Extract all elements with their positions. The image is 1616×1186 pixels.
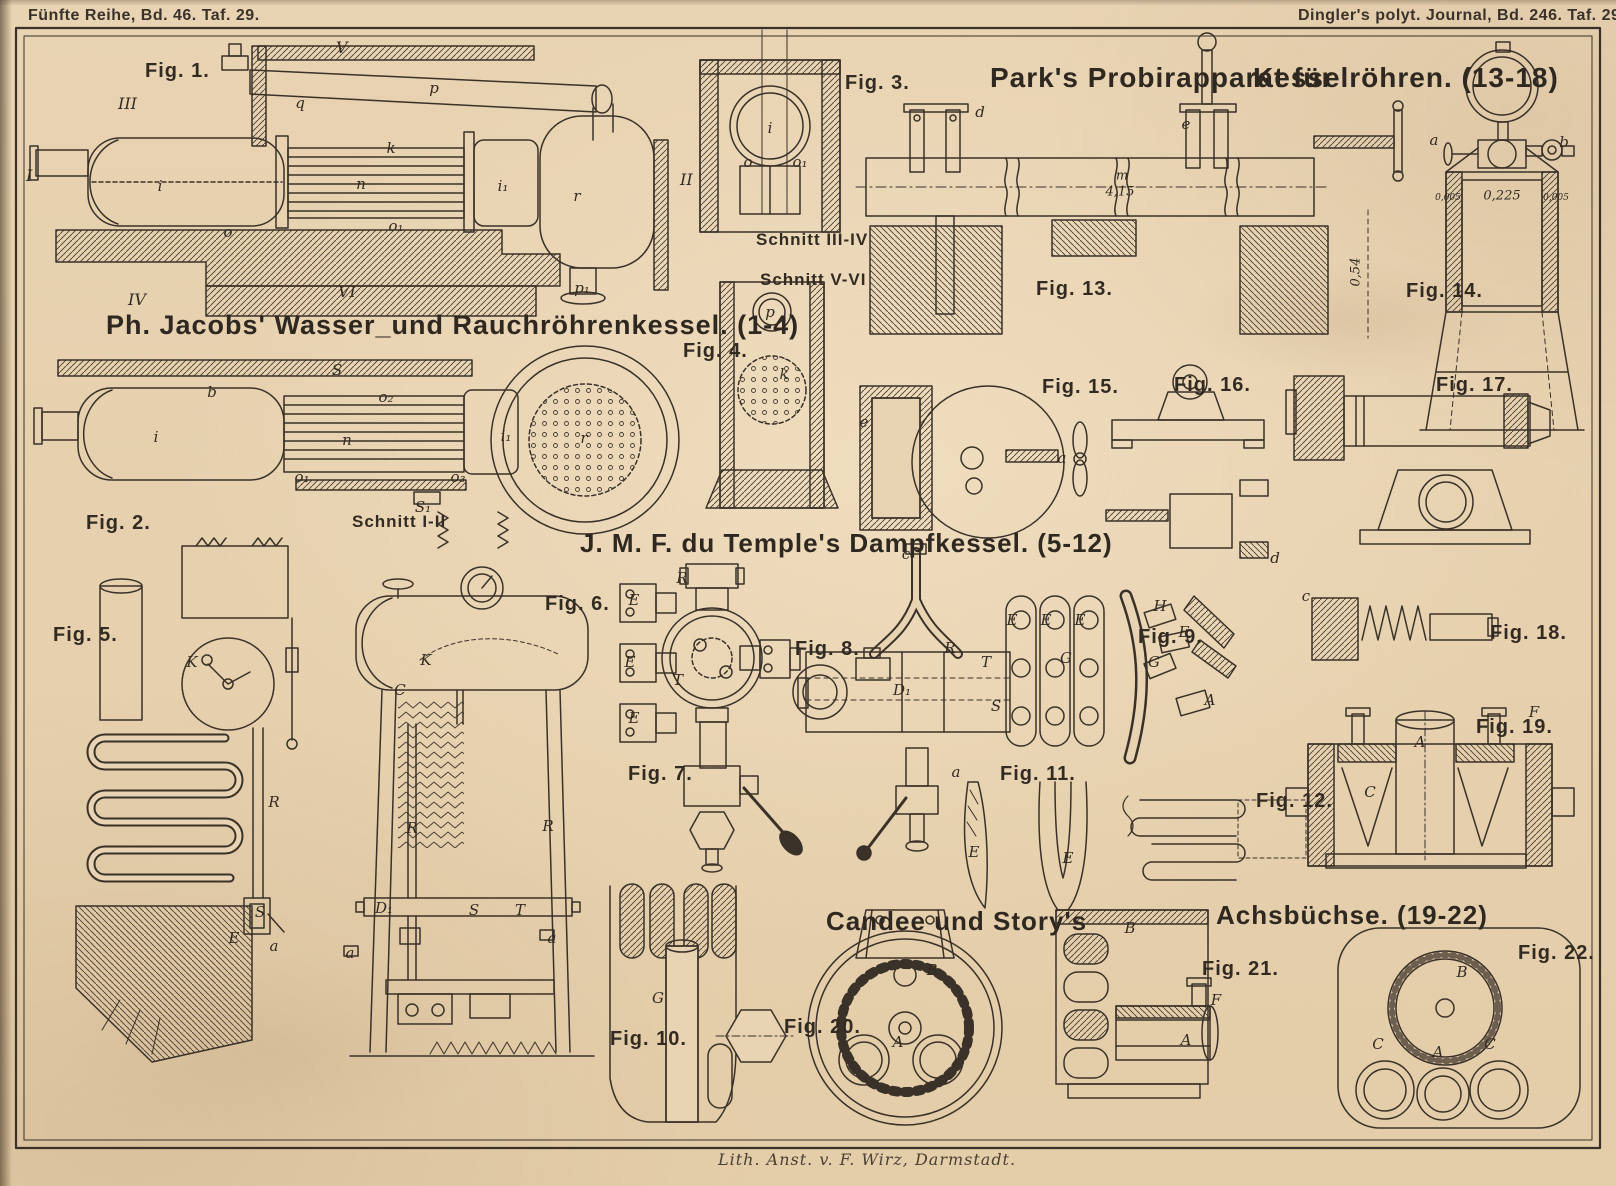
reference-mark: II: [680, 170, 693, 189]
part-label: i₁: [498, 177, 509, 195]
figure-label: Fig. 12.: [1256, 790, 1333, 813]
part-label: o: [223, 223, 232, 241]
section-label: Schnitt I-II: [352, 512, 446, 532]
reference-mark: IV: [128, 290, 146, 309]
part-label: c: [902, 545, 910, 563]
part-label: n: [356, 175, 366, 193]
part-label: p: [429, 79, 439, 97]
part-label: E: [229, 929, 240, 947]
part-label: m: [1116, 169, 1128, 184]
part-label: 0,54: [1349, 258, 1364, 287]
part-label: e: [1182, 115, 1191, 133]
part-label: d: [975, 103, 985, 121]
part-label: E: [625, 653, 636, 671]
part-label: E: [1007, 611, 1018, 629]
part-label: c: [1302, 587, 1310, 605]
part-label: C: [1372, 1035, 1383, 1053]
part-label: T: [981, 653, 991, 671]
part-label: R: [676, 569, 687, 587]
part-label: T: [515, 901, 525, 919]
part-label: b: [1559, 133, 1569, 151]
part-label: C: [1484, 1035, 1495, 1053]
part-label: F: [1529, 703, 1539, 721]
part-label: D₁: [893, 681, 911, 699]
figure-label: Fig. 19.: [1476, 716, 1553, 739]
part-label: a: [270, 937, 279, 955]
part-label: k: [386, 139, 395, 157]
part-label: S: [255, 903, 265, 921]
part-label: S: [469, 901, 479, 919]
figure-label: Fig. 2.: [86, 512, 151, 535]
part-label: A: [1415, 733, 1426, 751]
figure-label: Fig. 13.: [1036, 278, 1113, 301]
part-label: 0,225: [1483, 189, 1520, 204]
figure-label: Fig. 11.: [1000, 763, 1076, 786]
part-label: e: [860, 413, 869, 431]
part-label: E: [1075, 611, 1086, 629]
section-label: Schnitt V-VI: [760, 270, 866, 290]
part-label: 4,15: [1106, 185, 1135, 200]
part-label: K: [186, 653, 197, 671]
reference-mark: VI: [338, 282, 356, 301]
part-label: q: [295, 94, 305, 112]
part-label: A: [893, 1033, 904, 1051]
part-label: R: [406, 819, 417, 837]
part-label: o: [743, 153, 752, 171]
part-label: G: [652, 989, 664, 1007]
part-label: S: [332, 361, 342, 379]
part-label: a: [346, 944, 355, 962]
figure-label: Fig. 4.: [683, 340, 748, 363]
part-label: o₁: [388, 217, 403, 235]
part-label: o₃: [450, 468, 465, 486]
part-label: o₁: [294, 468, 309, 486]
part-label: B: [1456, 963, 1467, 981]
figure-label: Fig. 22.: [1518, 942, 1595, 965]
part-label: H: [1153, 597, 1166, 615]
part-label: E: [1179, 623, 1190, 641]
part-label: R: [268, 793, 279, 811]
part-label: k: [779, 365, 788, 383]
figure-label: Fig. 16.: [1174, 374, 1251, 397]
part-label: F: [1211, 991, 1221, 1009]
part-label: d: [1270, 549, 1280, 567]
part-label: b: [207, 383, 217, 401]
figure-label: Fig. 20.: [784, 1016, 861, 1039]
part-label: T: [673, 671, 683, 689]
part-label: i: [158, 177, 163, 195]
part-label: E: [1063, 849, 1074, 867]
part-label: R: [542, 817, 553, 835]
part-label: S: [991, 697, 1001, 715]
part-label: B: [926, 961, 937, 979]
part-label: p: [765, 303, 775, 321]
figure-label: Fig. 10.: [610, 1028, 687, 1051]
part-label: n: [342, 431, 352, 449]
part-label: E: [629, 709, 640, 727]
part-label: D₁: [375, 899, 393, 917]
part-label: S₁: [415, 498, 431, 516]
section-label: Schnitt III-IV: [756, 230, 868, 250]
part-label: a: [952, 763, 961, 781]
figure-label: Fig. 6.: [545, 593, 610, 616]
part-label: G: [1148, 653, 1160, 671]
figure-label: Fig. 18.: [1490, 622, 1567, 645]
label-overlay: Fig. 1.Fig. 2.Fig. 3.Fig. 4.Fig. 5.Fig. …: [0, 0, 1616, 1186]
part-label: R: [944, 639, 955, 657]
lithograph-plate-page: { "plate": { "header_left": "Fünfte Reih…: [0, 0, 1616, 1186]
part-label: 0,005: [1543, 193, 1569, 203]
lithographer-imprint: Lith. Anst. v. F. Wirz, Darmstadt.: [718, 1150, 1016, 1169]
reference-mark: III: [118, 94, 137, 113]
part-label: B: [1124, 919, 1135, 937]
figure-label: Fig. 5.: [53, 624, 118, 647]
figure-label: Fig. 21.: [1202, 958, 1279, 981]
part-label: i: [154, 428, 159, 446]
part-label: E: [1041, 611, 1052, 629]
part-label: r: [580, 429, 587, 447]
part-label: o₂: [378, 388, 393, 406]
reference-mark: I: [26, 166, 32, 185]
part-label: A: [1181, 1031, 1192, 1049]
reference-mark: V: [336, 38, 348, 57]
part-label: 0,005: [1435, 193, 1461, 203]
part-label: o₁: [792, 153, 807, 171]
figure-label: Fig. 17.: [1436, 374, 1513, 397]
part-label: A: [1205, 691, 1216, 709]
figure-label: Fig. 3.: [845, 72, 910, 95]
part-label: E: [629, 591, 640, 609]
part-label: a: [1058, 449, 1067, 467]
figure-label: Fig. 7.: [628, 763, 693, 786]
part-label: G: [1060, 649, 1072, 667]
part-label: a: [1430, 131, 1439, 149]
part-label: E: [969, 843, 980, 861]
part-label: i: [768, 119, 773, 137]
part-label: A: [1433, 1043, 1444, 1061]
figure-label: Fig. 8.: [795, 638, 860, 661]
figure-label: Fig. 9.: [1138, 626, 1203, 649]
figure-label: Fig. 14.: [1406, 280, 1483, 303]
part-label: C: [1364, 783, 1375, 801]
part-label: a: [548, 929, 557, 947]
figure-label: Fig. 1.: [145, 60, 210, 83]
part-label: K: [420, 651, 431, 669]
part-label: r: [573, 187, 580, 205]
part-label: i₁: [501, 427, 512, 445]
figure-label: Fig. 15.: [1042, 376, 1119, 399]
part-label: C: [394, 681, 405, 699]
part-label: p₁: [574, 279, 590, 297]
